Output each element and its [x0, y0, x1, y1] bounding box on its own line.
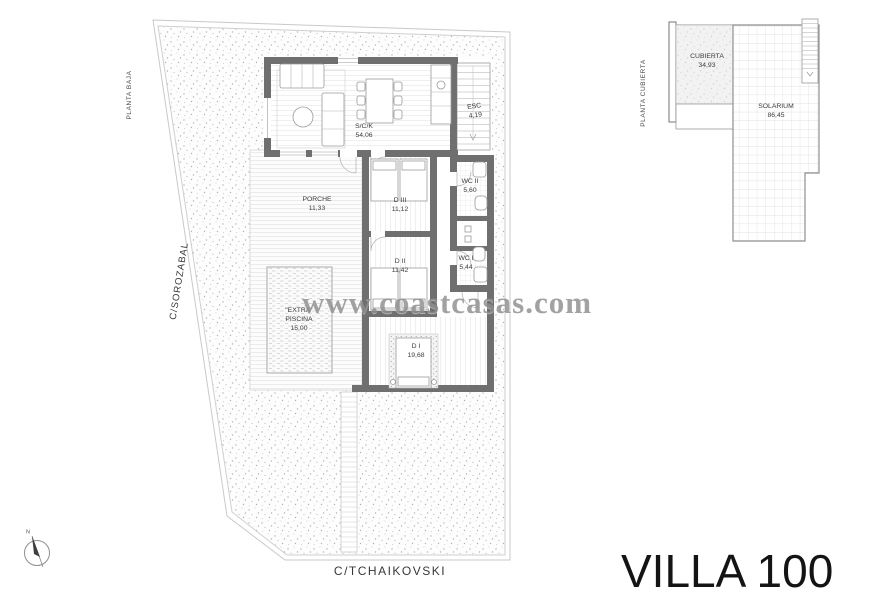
room-label-solarium: SOLARIUM 86,45: [758, 103, 794, 121]
room-name: CUBIERTA: [690, 53, 724, 62]
dining-table: [357, 79, 402, 123]
roof-staircase: [802, 19, 818, 83]
room-name: D I: [407, 343, 424, 352]
room-area: 5,60: [462, 187, 479, 196]
page-title: VILLA 100: [621, 544, 833, 598]
room-area: 5,44: [458, 264, 473, 273]
room-area: 34,93: [690, 62, 724, 71]
room-name: WC I: [458, 255, 473, 264]
room-area: 54,06: [355, 132, 373, 141]
compass-north-label: N: [26, 529, 30, 536]
compass-icon: [25, 536, 50, 567]
room-name: D III: [392, 197, 409, 206]
room-label-wc2: WC II 5,60: [462, 178, 479, 196]
street-label-bottom: C/TCHAIKOVSKI: [334, 564, 446, 580]
bed-d3-b: [400, 159, 427, 201]
coffee-table: [293, 107, 313, 127]
room-name: WC II: [462, 178, 479, 187]
room-area: 11,33: [302, 205, 331, 214]
wc1-sink: [474, 267, 487, 282]
roof-plan-label: PLANTA CUBIERTA: [640, 59, 648, 127]
room-name: S/C/K: [355, 123, 373, 132]
wc1-toilet: [473, 247, 485, 261]
room-label-porche: PORCHE 11,33: [302, 196, 331, 214]
roof-notch: [676, 104, 733, 129]
room-area: 86,45: [758, 112, 794, 121]
closet-box-b: [465, 236, 471, 242]
room-area: 15,00: [285, 324, 313, 333]
room-label-wc1: WC I 5,44: [458, 255, 473, 273]
kitchen-counter: [431, 65, 451, 124]
floorplan-page: PLANTA BAJA C/SOROZABAL C/TCHAIKOVSKI S/…: [0, 0, 891, 608]
room-name: PORCHE: [302, 196, 331, 205]
watermark: www.coastcasas.com: [302, 285, 592, 321]
room-area: 19,68: [407, 352, 424, 361]
room-label-esc: ESC 4,19: [467, 102, 483, 121]
room-label-d3: D III 11,12: [392, 197, 409, 215]
room-area: 11,42: [392, 267, 409, 276]
room-label-d2: D II 11,42: [392, 258, 409, 276]
bed-d1: [389, 334, 438, 388]
room-area: 11,12: [392, 206, 409, 215]
ground-floor-plan-label: PLANTA BAJA: [126, 70, 134, 119]
wc2-sink: [473, 162, 486, 177]
room-label-d1: D I 19,68: [407, 343, 424, 361]
closet-box-a: [465, 226, 471, 232]
room-label-cubierta: CUBIERTA 34,93: [690, 53, 724, 71]
bed-d3-a: [371, 159, 398, 201]
room-name: SOLARIUM: [758, 103, 794, 112]
room-name: D II: [392, 258, 409, 267]
room-label-sck: S/C/K 54,06: [355, 123, 373, 141]
garden-path: [341, 392, 357, 552]
wc2-toilet: [475, 196, 487, 210]
